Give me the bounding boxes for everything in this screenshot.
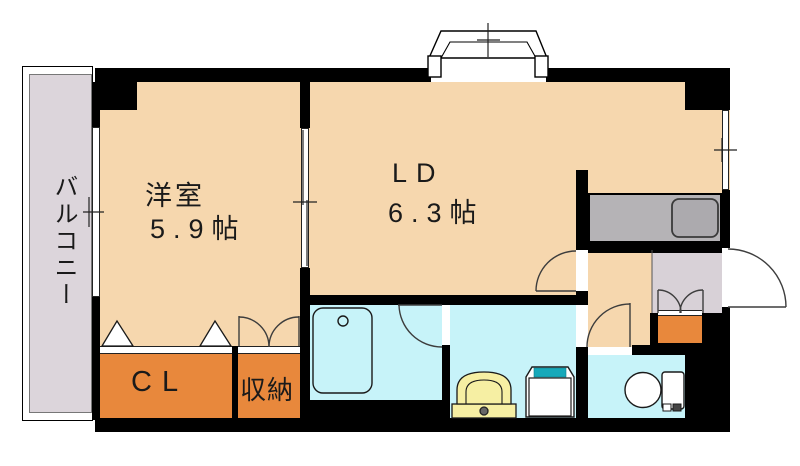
toilet: [625, 372, 684, 411]
balcony-label: バルコニー: [46, 174, 81, 309]
entrance-door: [728, 249, 786, 307]
bathroom-door: [398, 305, 442, 347]
closet-folding-doors: [102, 321, 231, 346]
washing-machine-pan: [526, 367, 574, 417]
vanity-sink: [452, 372, 516, 418]
closet-label: CL: [131, 366, 188, 399]
ld-door: [536, 251, 576, 291]
door-swings: [239, 249, 786, 347]
floorplan: バルコニー 洋室 5.9帖 LD 6.3帖 CL 収納: [0, 0, 800, 466]
western-room-size: 5.9帖: [150, 207, 247, 246]
storage-doors: [239, 316, 299, 347]
storage-label: 収納: [240, 370, 294, 407]
kitchen-sink: [672, 199, 718, 237]
fixtures-overlay: [0, 0, 800, 466]
bay-window: [428, 23, 548, 82]
bathtub: [313, 308, 372, 393]
toilet-door: [587, 303, 630, 347]
living-dining-size: 6.3帖: [388, 191, 485, 230]
shoe-cabinet-doors: [658, 290, 703, 313]
living-dining-label: LD: [392, 158, 445, 189]
